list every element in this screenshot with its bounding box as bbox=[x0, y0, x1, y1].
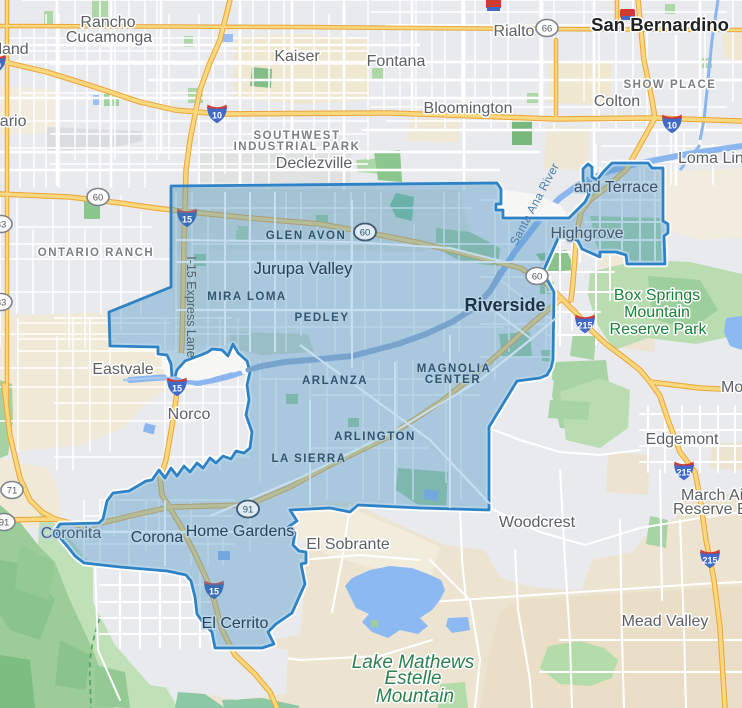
svg-text:Bloomington: Bloomington bbox=[424, 100, 513, 117]
svg-text:Kaiser: Kaiser bbox=[274, 48, 320, 65]
svg-text:and Terrace: and Terrace bbox=[574, 179, 658, 196]
svg-text:60: 60 bbox=[532, 272, 543, 283]
svg-text:CENTER: CENTER bbox=[425, 374, 481, 386]
svg-text:60: 60 bbox=[93, 193, 104, 204]
svg-text:Edgemont: Edgemont bbox=[646, 431, 719, 448]
svg-text:83: 83 bbox=[0, 220, 6, 231]
svg-text:Norco: Norco bbox=[168, 406, 211, 423]
svg-text:215: 215 bbox=[702, 556, 717, 566]
svg-text:Eastvale: Eastvale bbox=[92, 361, 153, 378]
svg-text:Rialto: Rialto bbox=[494, 23, 535, 40]
svg-text:ARLINGTON: ARLINGTON bbox=[334, 431, 416, 443]
svg-text:60: 60 bbox=[360, 228, 371, 239]
svg-text:71: 71 bbox=[7, 486, 18, 497]
svg-text:Corona: Corona bbox=[131, 529, 184, 546]
svg-text:El Sobrante: El Sobrante bbox=[306, 536, 390, 553]
svg-text:215: 215 bbox=[577, 321, 592, 331]
svg-text:Colton: Colton bbox=[594, 93, 640, 110]
svg-text:215: 215 bbox=[676, 468, 691, 478]
svg-text:Jurupa Valley: Jurupa Valley bbox=[254, 260, 354, 278]
svg-text:15: 15 bbox=[182, 215, 192, 225]
svg-text:ARLANZA: ARLANZA bbox=[302, 375, 368, 387]
svg-text:91: 91 bbox=[0, 518, 9, 529]
svg-text:INDUSTRIAL PARK: INDUSTRIAL PARK bbox=[234, 141, 361, 153]
svg-text:Declezville: Declezville bbox=[276, 155, 353, 172]
svg-text:15: 15 bbox=[172, 384, 182, 394]
svg-text:Mo: Mo bbox=[721, 379, 742, 396]
svg-text:Riverside: Riverside bbox=[464, 295, 545, 315]
svg-text:Highgrove: Highgrove bbox=[551, 225, 624, 242]
svg-text:Ontario: Ontario bbox=[0, 113, 27, 130]
svg-text:Woodcrest: Woodcrest bbox=[499, 514, 576, 531]
svg-text:PEDLEY: PEDLEY bbox=[294, 312, 349, 324]
svg-text:Box Springs: Box Springs bbox=[614, 287, 700, 304]
svg-text:10: 10 bbox=[667, 121, 677, 131]
svg-text:91: 91 bbox=[243, 505, 254, 516]
svg-text:10: 10 bbox=[0, 61, 1, 71]
svg-text:MIRA LOMA: MIRA LOMA bbox=[207, 291, 287, 303]
svg-text:LA SIERRA: LA SIERRA bbox=[271, 453, 346, 465]
svg-text:I-15 Express Lane: I-15 Express Lane bbox=[184, 256, 198, 357]
svg-text:Mountain: Mountain bbox=[624, 304, 690, 321]
svg-text:Mountain: Mountain bbox=[376, 686, 454, 707]
svg-text:Reserve Park: Reserve Park bbox=[610, 321, 708, 338]
svg-text:Coronita: Coronita bbox=[41, 525, 102, 542]
svg-text:Home Gardens: Home Gardens bbox=[186, 523, 295, 540]
svg-text:El Cerrito: El Cerrito bbox=[202, 615, 269, 632]
svg-text:ONTARIO RANCH: ONTARIO RANCH bbox=[38, 247, 154, 259]
svg-text:San Bernardino: San Bernardino bbox=[591, 14, 729, 35]
svg-text:SHOW PLACE: SHOW PLACE bbox=[624, 79, 717, 91]
svg-text:Loma Lind: Loma Lind bbox=[678, 150, 742, 167]
svg-text:66: 66 bbox=[542, 24, 553, 35]
svg-text:GLEN AVON: GLEN AVON bbox=[266, 230, 347, 242]
svg-text:15: 15 bbox=[209, 587, 219, 597]
svg-text:Cucamonga: Cucamonga bbox=[66, 29, 152, 46]
svg-text:Reserve Ba: Reserve Ba bbox=[673, 501, 742, 518]
svg-text:10: 10 bbox=[212, 111, 222, 121]
svg-text:Fontana: Fontana bbox=[367, 53, 426, 70]
svg-text:Mead Valley: Mead Valley bbox=[622, 613, 709, 630]
svg-text:83: 83 bbox=[0, 298, 6, 309]
svg-text:Upland: Upland bbox=[0, 41, 29, 58]
